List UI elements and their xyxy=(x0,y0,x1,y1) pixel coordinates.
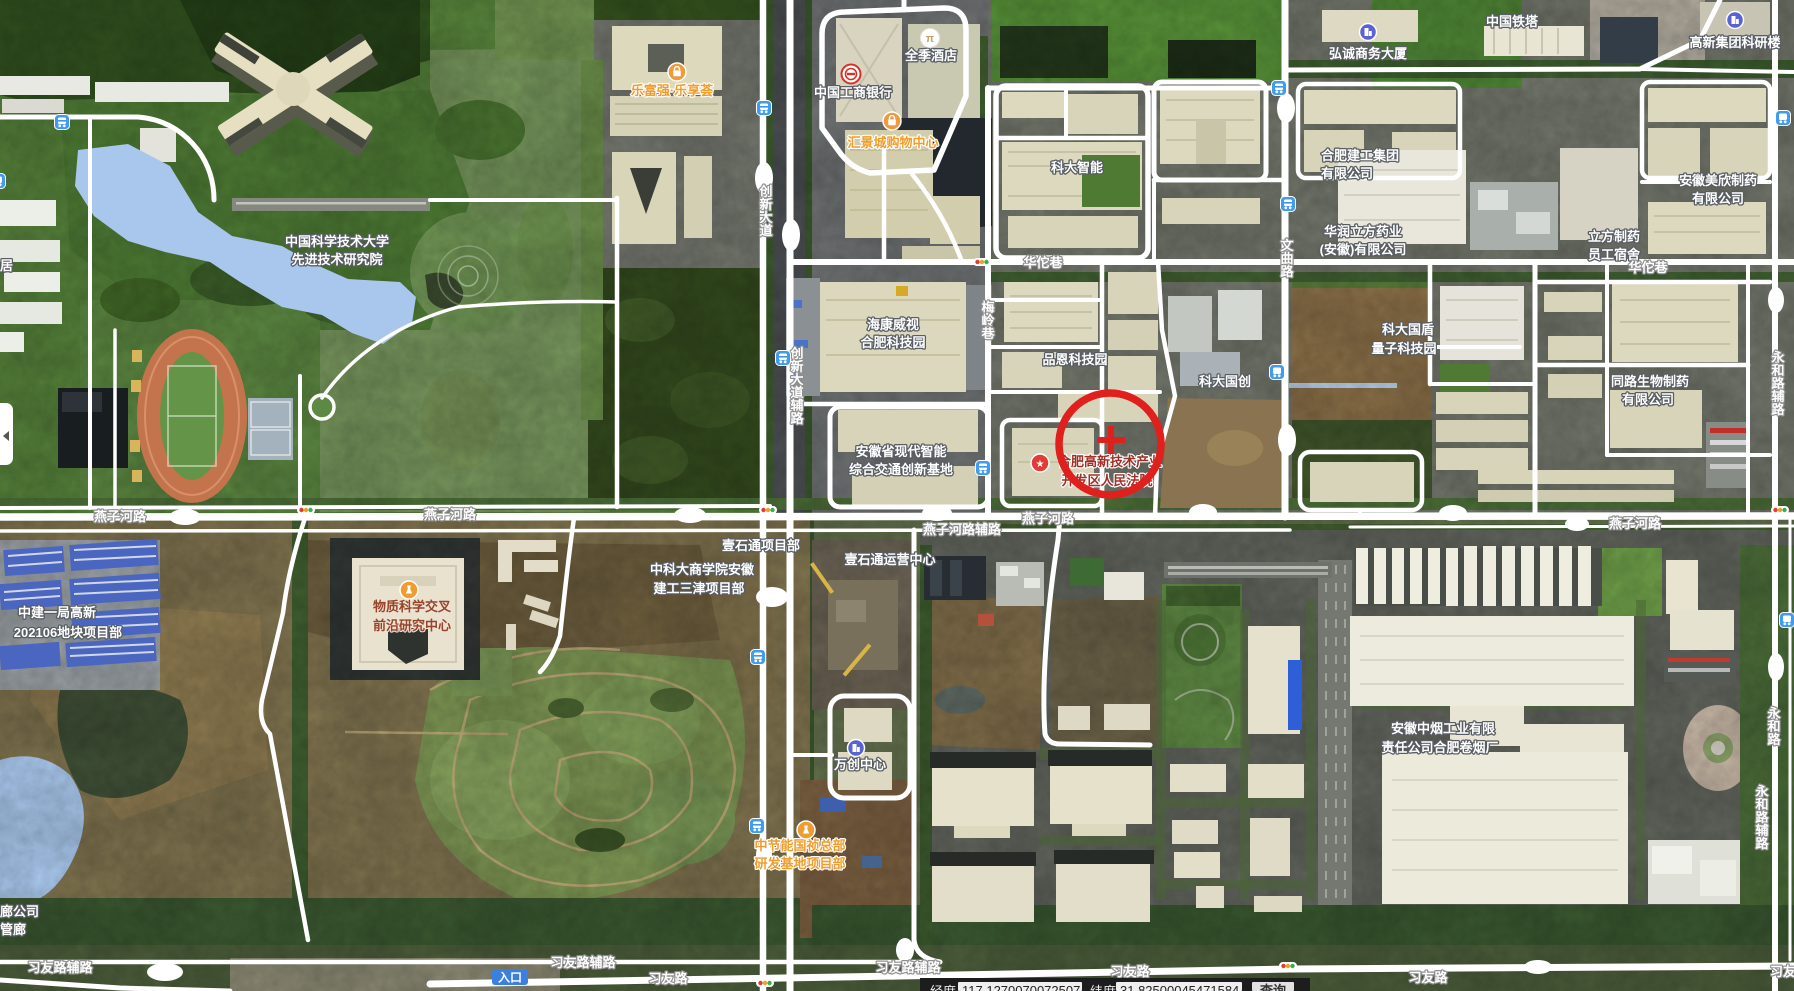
svg-text:有限公司: 有限公司 xyxy=(1321,166,1373,181)
svg-text:π: π xyxy=(926,33,935,45)
svg-text:永和路辅路: 永和路辅路 xyxy=(1754,784,1769,851)
svg-text:华佗巷: 华佗巷 xyxy=(1023,255,1063,270)
svg-text:中科大商学院安徽: 中科大商学院安徽 xyxy=(650,562,755,577)
svg-text:习友路辅路: 习友路辅路 xyxy=(27,960,93,975)
svg-text:安徽美欣制药: 安徽美欣制药 xyxy=(1679,173,1757,188)
svg-text:中国科学技术大学: 中国科学技术大学 xyxy=(285,234,389,249)
svg-text:习友路: 习友路 xyxy=(648,971,688,986)
svg-text:习友路辅路: 习友路辅路 xyxy=(550,955,616,970)
svg-text:合肥建工集团: 合肥建工集团 xyxy=(1321,148,1399,163)
svg-text:研发基地项目部: 研发基地项目部 xyxy=(754,856,845,871)
svg-text:全季酒店: 全季酒店 xyxy=(904,48,957,63)
svg-text:乐富强·乐享荟: 乐富强·乐享荟 xyxy=(631,83,714,98)
svg-text:中国工商银行: 中国工商银行 xyxy=(814,85,892,100)
svg-text:壹石通运营中心: 壹石通运营中心 xyxy=(844,552,935,567)
svg-text:高新集团科研楼: 高新集团科研楼 xyxy=(1689,35,1780,50)
svg-text:管廊: 管廊 xyxy=(0,922,26,937)
svg-text:燕子河路: 燕子河路 xyxy=(94,509,147,524)
svg-text:燕子河路: 燕子河路 xyxy=(424,507,477,522)
svg-text:习友路: 习友路 xyxy=(1770,964,1794,979)
svg-text:合肥高新技术产业: 合肥高新技术产业 xyxy=(1058,454,1162,469)
svg-text:永和路辅路: 永和路辅路 xyxy=(1770,350,1785,417)
svg-text:品恩科技园: 品恩科技园 xyxy=(1042,352,1107,367)
svg-text:同路生物制药: 同路生物制药 xyxy=(1611,374,1689,389)
svg-text:创新大道: 创新大道 xyxy=(758,184,772,238)
svg-text:(安徽)有限公司: (安徽)有限公司 xyxy=(1320,242,1407,257)
svg-text:31.82500045471584: 31.82500045471584 xyxy=(1120,983,1239,991)
svg-text:责任公司合肥卷烟厂: 责任公司合肥卷烟厂 xyxy=(1381,740,1498,755)
svg-text:汇景城购物中心: 汇景城购物中心 xyxy=(847,135,938,150)
svg-text:华润立方药业: 华润立方药业 xyxy=(1324,224,1402,239)
svg-text:先进技术研究院: 先进技术研究院 xyxy=(291,252,382,267)
svg-text:科大智能: 科大智能 xyxy=(1051,160,1103,175)
svg-text:安徽中烟工业有限: 安徽中烟工业有限 xyxy=(1391,721,1496,736)
svg-text:梅岭巷: 梅岭巷 xyxy=(980,300,995,341)
svg-text:安徽省现代智能: 安徽省现代智能 xyxy=(855,444,946,459)
svg-text:立方制药: 立方制药 xyxy=(1588,229,1640,244)
svg-text:居: 居 xyxy=(0,258,13,273)
svg-text:202106地块项目部: 202106地块项目部 xyxy=(14,625,122,640)
svg-text:文曲路: 文曲路 xyxy=(1280,238,1294,279)
svg-text:纬度: 纬度 xyxy=(1090,984,1116,991)
svg-text:习友路: 习友路 xyxy=(1408,970,1448,985)
svg-text:前沿研究中心: 前沿研究中心 xyxy=(373,618,451,633)
svg-text:中建一局高新: 中建一局高新 xyxy=(18,605,96,620)
svg-text:廊公司: 廊公司 xyxy=(0,904,39,919)
svg-text:科大国创: 科大国创 xyxy=(1199,374,1251,389)
svg-text:综合交通创新基地: 综合交通创新基地 xyxy=(849,462,953,477)
svg-text:有限公司: 有限公司 xyxy=(1622,392,1674,407)
svg-text:燕子河路: 燕子河路 xyxy=(1609,516,1662,531)
svg-text:华佗巷: 华佗巷 xyxy=(1628,260,1668,275)
svg-text:查询: 查询 xyxy=(1259,983,1286,991)
svg-text:中节能国祯总部: 中节能国祯总部 xyxy=(754,838,845,853)
svg-text:创新大道辅路: 创新大道辅路 xyxy=(789,346,804,426)
svg-text:有限公司: 有限公司 xyxy=(1692,191,1744,206)
svg-text:壹石通项目部: 壹石通项目部 xyxy=(722,538,800,553)
svg-text:燕子河路: 燕子河路 xyxy=(1022,511,1075,526)
svg-text:经度: 经度 xyxy=(930,984,956,991)
svg-text:永和路: 永和路 xyxy=(1766,706,1781,747)
svg-text:量子科技园: 量子科技园 xyxy=(1371,341,1436,356)
svg-text:弘诚商务大厦: 弘诚商务大厦 xyxy=(1329,46,1408,61)
svg-text:中国铁塔: 中国铁塔 xyxy=(1486,14,1539,29)
svg-text:117.1270070072507: 117.1270070072507 xyxy=(962,983,1080,991)
svg-text:习友路辅路: 习友路辅路 xyxy=(875,960,941,975)
svg-text:万创中心: 万创中心 xyxy=(833,757,886,772)
svg-text:入口: 入口 xyxy=(498,971,522,985)
svg-text:物质科学交叉: 物质科学交叉 xyxy=(373,599,452,614)
svg-text:建工三津项目部: 建工三津项目部 xyxy=(653,581,744,596)
svg-text:★: ★ xyxy=(1036,459,1045,470)
svg-text:海康威视: 海康威视 xyxy=(867,317,919,332)
svg-text:科大国盾: 科大国盾 xyxy=(1382,322,1434,337)
svg-text:习友路: 习友路 xyxy=(1110,964,1150,979)
svg-text:合肥科技园: 合肥科技园 xyxy=(860,335,925,350)
svg-text:燕子河路辅路: 燕子河路辅路 xyxy=(923,522,1002,537)
